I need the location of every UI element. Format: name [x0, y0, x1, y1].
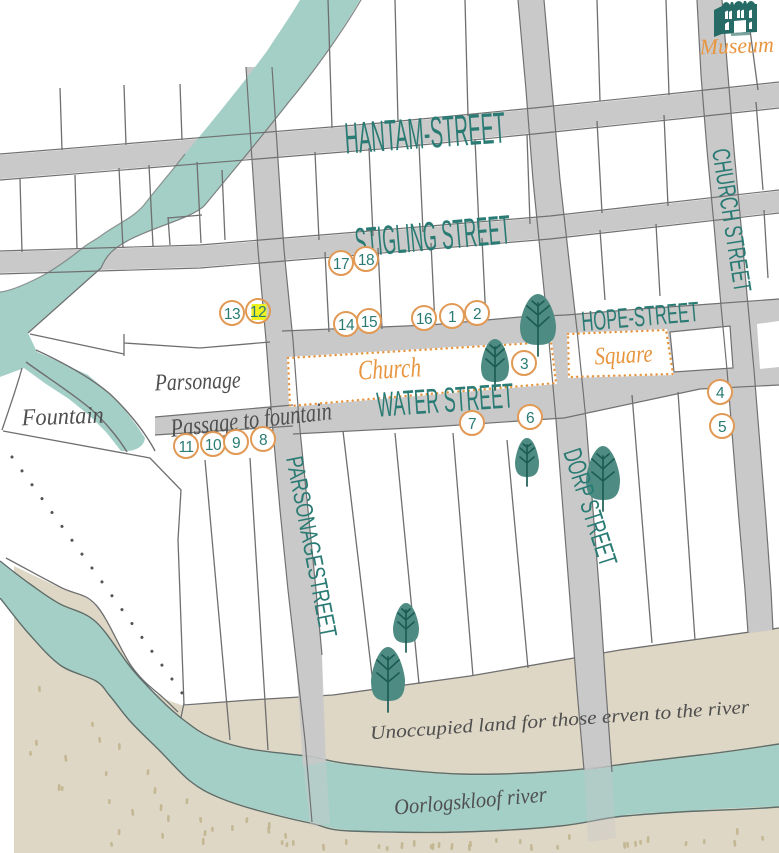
svg-text:Parsonage: Parsonage — [154, 368, 242, 397]
svg-text:13: 13 — [224, 306, 240, 323]
svg-text:6: 6 — [526, 410, 534, 427]
svg-text:9: 9 — [232, 435, 240, 452]
svg-text:Museum: Museum — [698, 32, 774, 60]
svg-text:15: 15 — [361, 314, 377, 331]
svg-text:1: 1 — [448, 309, 456, 326]
svg-text:Fountain: Fountain — [20, 403, 104, 432]
svg-text:10: 10 — [205, 437, 222, 454]
svg-text:14: 14 — [338, 317, 355, 334]
svg-text:17: 17 — [333, 256, 349, 273]
svg-text:7: 7 — [468, 416, 476, 433]
svg-text:Square: Square — [594, 341, 653, 371]
svg-text:3: 3 — [520, 356, 528, 373]
svg-text:8: 8 — [259, 432, 267, 449]
svg-text:5: 5 — [718, 419, 726, 436]
svg-text:18: 18 — [358, 252, 374, 269]
svg-text:11: 11 — [178, 439, 193, 456]
svg-text:4: 4 — [716, 385, 725, 402]
svg-text:16: 16 — [416, 311, 432, 328]
svg-text:2: 2 — [473, 306, 481, 323]
svg-text:Church: Church — [357, 352, 422, 386]
svg-text:12: 12 — [250, 304, 266, 321]
